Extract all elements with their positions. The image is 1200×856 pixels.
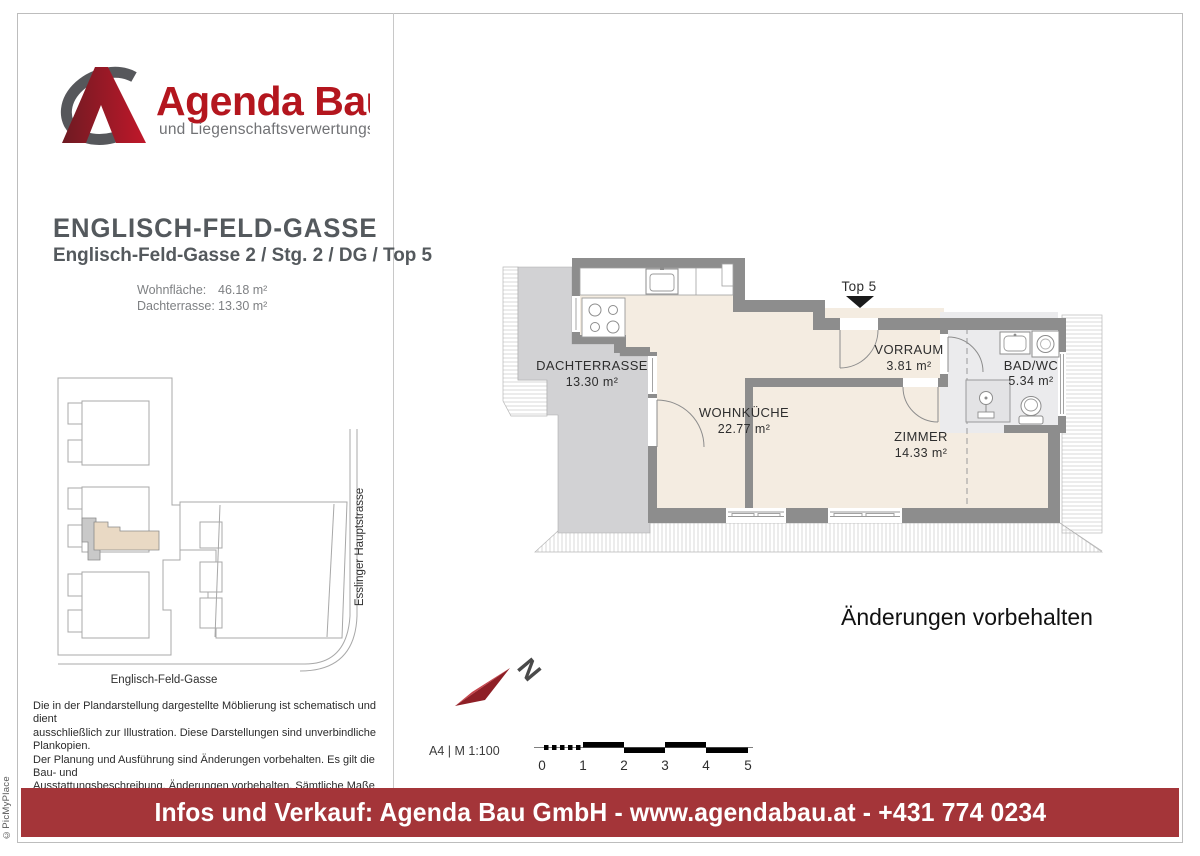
svg-text:2: 2 (620, 758, 628, 773)
company-logo: Agenda Bau und Liegenschaftsverwertungs … (40, 55, 370, 150)
area-label: Wohnfläche: (137, 283, 218, 297)
disclaimer-line: ausschließlich zur Illustration. Diese D… (33, 727, 378, 754)
plan-sheet: ©PicMyPlace Agenda Bau und Liegenschafts… (0, 0, 1200, 856)
room-label: BAD/WC (1004, 358, 1058, 373)
floor-plan: Top 5 DACHTERRASSE 13.30 m² WOHNKÜCHE 22… (490, 250, 1115, 570)
disclaimer-line: Der Planung und Ausführung sind Änderung… (33, 754, 378, 781)
footer-contact-bar: Infos und Verkauf: Agenda Bau GmbH - www… (21, 788, 1179, 837)
street-label-bottom: Englisch-Feld-Gasse (111, 674, 218, 686)
credit-watermark: ©PicMyPlace (1, 778, 12, 840)
room-area: 5.34 m² (1008, 374, 1053, 388)
scale-label: A4 | M 1:100 (429, 744, 500, 758)
north-arrow: N (440, 630, 550, 730)
area-value: 13.30 m² (218, 299, 267, 313)
room-area: 13.30 m² (566, 375, 619, 389)
scale-bar: A4 | M 1:100 0 1 2 3 4 5 (420, 733, 765, 778)
svg-text:0: 0 (538, 758, 546, 773)
washing-machine (1032, 331, 1059, 357)
room-area: 3.81 m² (886, 359, 931, 373)
street-label-right: Esslinger Hauptstrasse (354, 488, 366, 606)
room-label: DACHTERRASSE (536, 358, 648, 373)
area-row-wohnflaeche: Wohnfläche:46.18 m² (137, 283, 267, 297)
page-title: ENGLISCH-FELD-GASSE (53, 213, 377, 244)
logo-title: Agenda Bau (156, 78, 370, 124)
room-area: 14.33 m² (895, 446, 948, 460)
scale-numbers: 0 1 2 3 4 5 (538, 758, 752, 773)
stove (582, 298, 625, 337)
area-value: 46.18 m² (218, 283, 267, 297)
column-divider (393, 13, 394, 788)
site-plan: Englisch-Feld-Gasse Esslinger Hauptstras… (50, 372, 375, 694)
toilet (1019, 397, 1043, 425)
room-label: ZIMMER (894, 429, 948, 444)
north-letter: N (511, 653, 547, 687)
logo-a-icon (62, 67, 146, 143)
entrance-arrow-icon (846, 296, 874, 308)
footer-contact-text: Infos und Verkauf: Agenda Bau GmbH - www… (154, 797, 1046, 828)
svg-text:5: 5 (744, 758, 752, 773)
room-label: VORRAUM (874, 342, 943, 357)
room-label: WOHNKÜCHE (699, 405, 789, 420)
logo-subtitle: und Liegenschaftsverwertungs GmbH (159, 121, 370, 138)
area-row-dachterrasse: Dachterrasse:13.30 m² (137, 299, 267, 313)
unit-marker-label: Top 5 (841, 279, 876, 294)
disclaimer-line: Die in der Plandarstellung dargestellte … (33, 700, 378, 727)
note-text: Änderungen vorbehalten (841, 604, 1093, 631)
room-area: 22.77 m² (718, 422, 771, 436)
svg-text:1: 1 (579, 758, 587, 773)
svg-text:3: 3 (661, 758, 669, 773)
svg-text:4: 4 (702, 758, 710, 773)
page-subtitle: Englisch-Feld-Gasse 2 / Stg. 2 / DG / To… (53, 244, 432, 267)
area-label: Dachterrasse: (137, 299, 218, 313)
